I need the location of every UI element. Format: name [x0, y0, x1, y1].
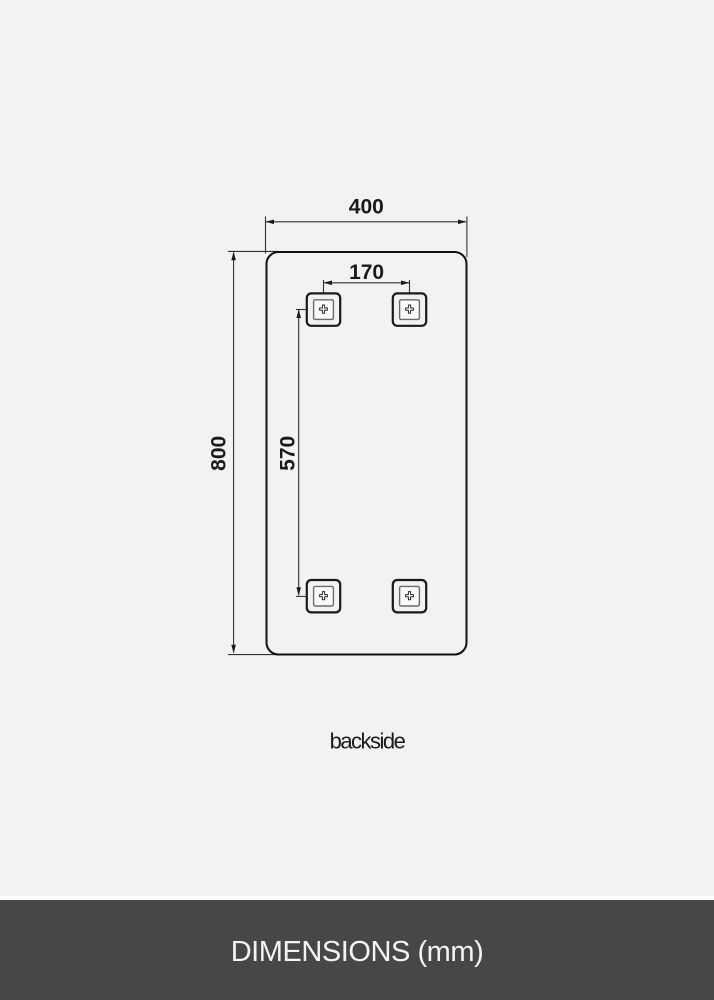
- svg-text:400: 400: [349, 196, 384, 219]
- svg-text:570: 570: [276, 436, 299, 471]
- svg-text:800: 800: [207, 436, 230, 471]
- svg-text:backside: backside: [330, 728, 406, 753]
- svg-text:170: 170: [349, 261, 384, 284]
